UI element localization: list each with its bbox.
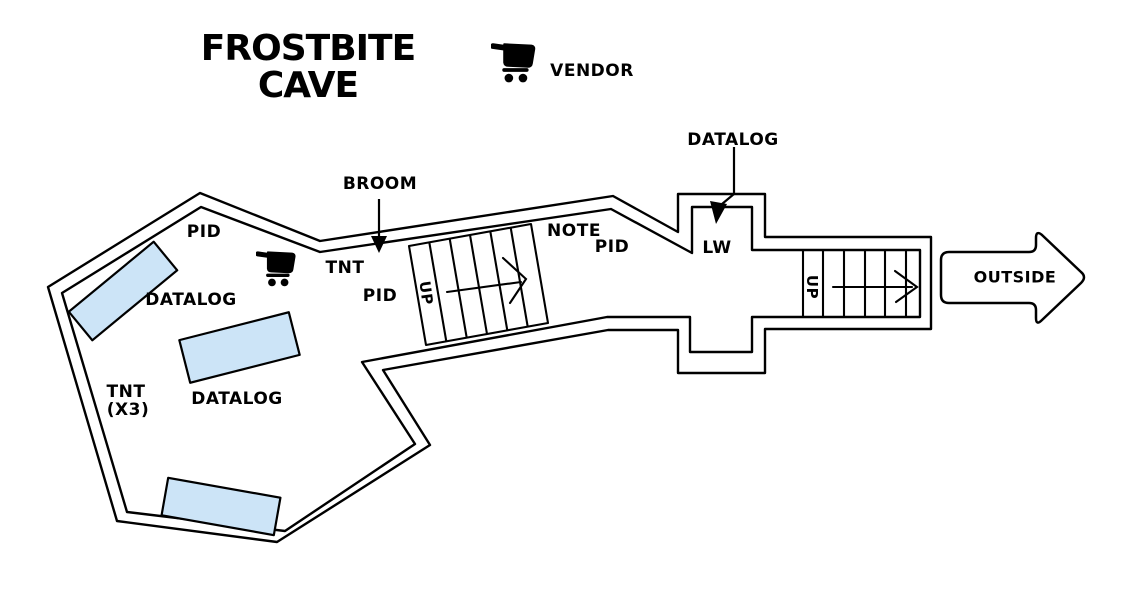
label-tnt-x3-line2: (X3) [107,400,149,420]
shopping-cart-icon-map [256,249,298,289]
label-datalog-north: DATALOG [687,130,779,150]
label-note: NOTE [547,221,601,241]
title-line-1: FROSTBITE [183,30,433,67]
label-pid-center: PID [363,286,397,306]
shopping-cart-icon-legend [491,41,538,85]
label-tnt-center: TNT [326,258,365,278]
page-title: FROSTBITE CAVE [183,30,433,104]
label-pid-east: PID [595,237,629,257]
label-tnt-x3-line1: TNT [107,382,146,402]
title-line-2: CAVE [183,67,433,104]
frostbite-cave-map: FROSTBITE CAVE VENDOR PIDDATALOGTNTPIDBR… [0,0,1127,603]
label-lw: LW [702,238,731,258]
label-up-upper-stairs: UP [803,275,821,299]
label-up-lower-stairs: UP [415,280,436,306]
label-datalog-south: DATALOG [191,389,283,409]
legend-vendor-label: VENDOR [550,61,634,81]
label-pid-upper: PID [187,222,221,242]
label-outside: OUTSIDE [974,268,1057,287]
label-datalog-west: DATALOG [145,290,237,310]
label-broom: BROOM [343,174,417,194]
